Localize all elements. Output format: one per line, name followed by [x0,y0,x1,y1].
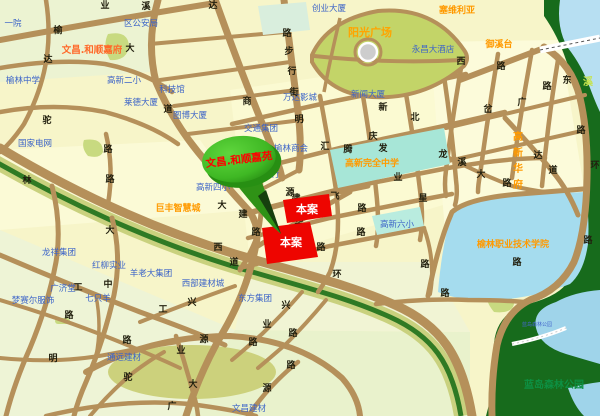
road-name-char: 路 [496,60,506,72]
place-label: 蓝岛森林公园 [522,321,552,328]
place-label: 蓝岛森林公园 [524,378,584,391]
road-name-char: 北 [410,111,419,123]
road-name-char: 路 [576,124,586,136]
road-name-char: 路 [282,27,292,39]
plaza-circle [359,43,377,61]
road-name-char: 路 [316,241,326,253]
road-name-char: 建 [238,208,248,220]
road-name-char: 路 [122,334,132,346]
road-name-char: 明 [48,353,57,364]
place-label: 图博大厦 [173,110,208,121]
place-label: 科技馆 [159,84,185,95]
road-name-char: 中 [103,278,112,290]
road-name-char: 榆 [53,24,63,36]
road-name-char: 溪 [141,0,151,12]
place-label: 西部建材城 [182,278,225,289]
road-name-char: 西 [456,56,465,67]
site-label-lower: 本案 [280,235,303,249]
road-name-char: 路 [420,258,430,270]
road-name-char: 道 [229,256,238,268]
road-name-char: 环 [590,160,599,171]
road-name-char: 路 [251,226,261,238]
road-name-char: 工 [73,282,82,293]
road-name-char: 业 [262,318,271,330]
road-name-char: 路 [356,226,366,238]
map-canvas: 一院区公安局文昌.和顺嘉府榆林中学高新二小科技馆莱德大厦图博大厦国家电网万达影城… [0,0,600,416]
road-name-char: 道 [163,103,172,115]
road-name-char: 驼 [42,114,51,126]
road-name-char: 大 [476,168,485,180]
place-label: 红柳实业 [92,260,126,271]
road-name-char: 达 [208,0,217,11]
road-name-char: 广 [167,400,176,412]
site-label-upper: 本案 [296,202,319,216]
road-name-char: 业 [393,171,402,183]
road-name-char: 路 [357,202,367,214]
road-name-char: 源 [199,333,208,345]
place-label: 塞维利亚 [439,4,475,16]
place-label: 阳光广场 [348,25,392,39]
place-label: 榆林中学 [6,75,41,86]
road-name-char: 兴 [187,296,196,308]
place-label: 莱德大厦 [124,97,159,108]
road-name-char: 业 [100,0,109,11]
place-label: 广济堂 [50,283,76,294]
road-name-char: 溪 [457,156,467,168]
place-label: 交通集团 [244,123,278,134]
place-label: 万达影城 [283,92,318,103]
road-name-char: 步 [284,45,293,57]
road-name-char: 新 [378,101,387,113]
road-name-char: 西 [213,242,222,253]
place-label: 一院 [4,18,22,29]
place-label: 新闻大厦 [351,89,386,100]
road-name-char: 兴 [281,299,290,311]
road-name-char: 东 [562,74,571,86]
road-name-char: 工 [158,304,167,315]
road-name-char: 龙 [437,148,447,160]
place-label: 永昌大酒店 [412,44,455,55]
road-name-char: 路 [288,327,298,339]
place-label: 梦赛尔服饰 [12,295,55,306]
place-label: 七只羊 [85,293,111,304]
road-name-char: 广 [517,96,526,108]
road-name-char: 汇 [320,140,329,152]
road-name-char: 路 [286,359,296,371]
road-name-char: 大 [188,378,197,390]
road-name-char: 达 [533,149,542,161]
road-name-char: 发 [377,142,388,154]
road-name-char: 路 [64,309,74,321]
place-label: 羊老大集团 [130,268,173,279]
road-name-char: 大 [217,199,226,211]
road-name-char: 路 [502,177,512,189]
road-name-char: 大 [105,224,114,236]
place-label: 区公安局 [124,18,158,29]
road-name-char: 路 [105,173,115,185]
road-name-char: 环 [332,269,341,280]
road-name-char: 行 [286,65,296,77]
road-name-char: 大 [125,42,134,54]
road-name-char: 道 [548,164,557,176]
road-name-char: 源 [262,382,271,394]
road-name-char: 路 [248,336,258,348]
road-name-char: 林 [22,174,32,186]
road-name-char: 岔 [483,103,493,115]
road-name-char: 商 [242,95,251,107]
road-name-char: 明 [294,114,303,125]
place-label: 东方集团 [238,293,272,304]
road-name-char: 达 [43,53,52,65]
road-name-char: 路 [512,256,522,268]
road-name-char: 腾 [342,143,353,155]
road-name-char: 街 [288,86,298,98]
place-label: 通远建材 [107,352,142,363]
place-label: 高新二小 [107,75,142,86]
river-name-char: 溪 [583,75,594,88]
road-name-char: 业 [176,344,185,356]
road-name-char: 路 [103,143,113,155]
place-label: 巨丰智慧城 [155,202,200,214]
place-label: 龙祥集团 [42,247,76,258]
road-name-char: 驼 [123,371,132,383]
road-name-char: 路 [583,234,593,246]
road-name-char: 路 [440,287,450,299]
road-name-char: 路 [542,80,552,92]
road-name-char: 庆 [367,130,377,142]
place-label: 国家电网 [18,138,52,149]
place-label: 榆林商会 [274,143,309,154]
place-label: 高新完全中学 [345,157,399,169]
place-label: 文昌建材 [232,403,267,414]
place-label: 御溪台 [484,38,512,50]
city-map: 一院区公安局文昌.和顺嘉府榆林中学高新二小科技馆莱德大厦图博大厦国家电网万达影城… [0,0,600,416]
road-name-char: 星 [418,193,427,204]
place-label: 创业大厦 [312,3,347,14]
place-label: 高新六小 [380,219,415,230]
place-label: 文昌.和顺嘉府 [61,44,123,56]
place-label: 榆林职业技术学院 [477,238,549,250]
road-name-char: 飞 [330,191,339,202]
